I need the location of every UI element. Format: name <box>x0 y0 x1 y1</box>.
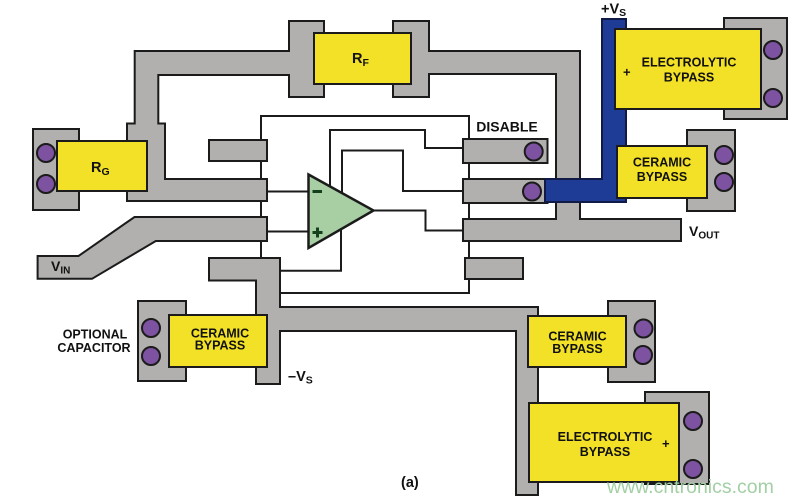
svg-text:OPTIONAL: OPTIONAL <box>63 328 128 342</box>
svg-text:CERAMIC: CERAMIC <box>633 156 691 170</box>
svg-text:BYPASS: BYPASS <box>195 339 245 353</box>
svg-text:BYPASS: BYPASS <box>637 170 687 184</box>
svg-text:DISABLE: DISABLE <box>476 119 537 135</box>
svg-text:BYPASS: BYPASS <box>552 342 602 356</box>
svg-text:CAPACITOR: CAPACITOR <box>57 341 130 355</box>
svg-text:BYPASS: BYPASS <box>664 71 714 85</box>
svg-text:+: + <box>623 65 631 80</box>
svg-text:ELECTROLYTIC: ELECTROLYTIC <box>642 56 737 70</box>
svg-text:+: + <box>662 436 670 451</box>
svg-text:www.cntronics.com: www.cntronics.com <box>606 476 774 498</box>
svg-text:BYPASS: BYPASS <box>580 445 630 459</box>
svg-text:ELECTROLYTIC: ELECTROLYTIC <box>558 430 653 444</box>
svg-text:(a): (a) <box>401 475 419 491</box>
